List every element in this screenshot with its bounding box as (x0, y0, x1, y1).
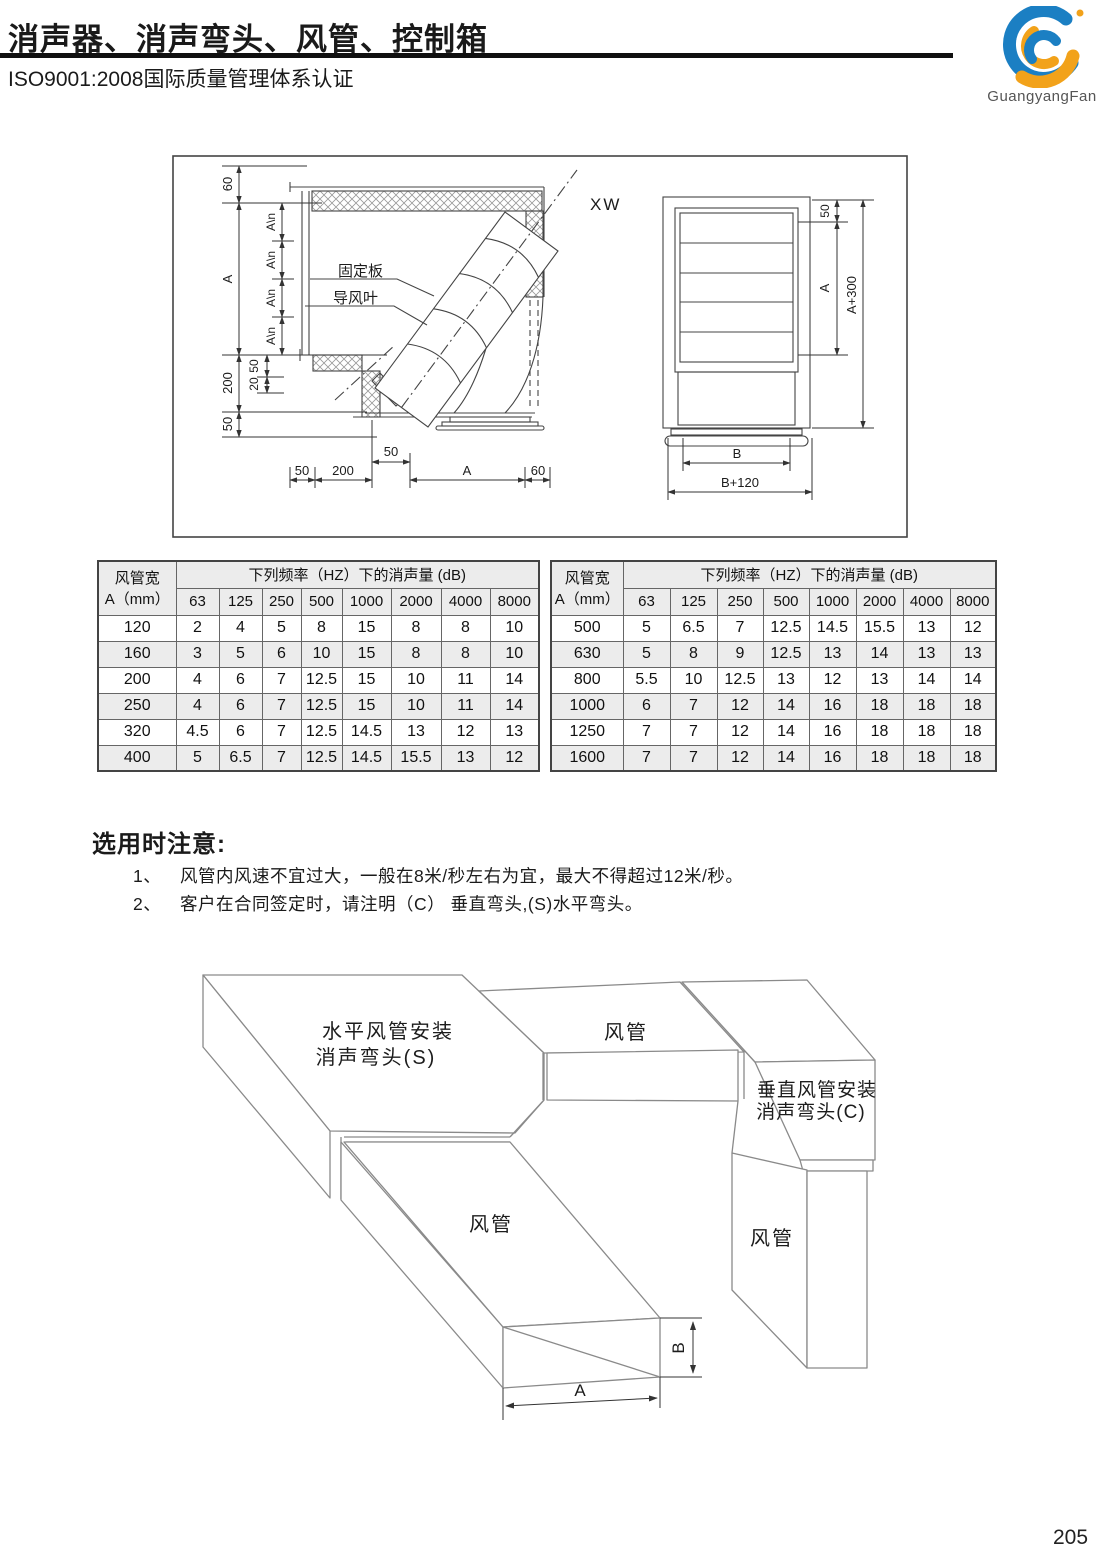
frequency-header-cell: 8000 (950, 588, 996, 615)
selection-notes-heading: 选用时注意: (92, 824, 226, 859)
table-cell: 18 (903, 719, 950, 745)
dim-front-B120-label: B+120 (721, 475, 759, 490)
table-cell: 16 (809, 693, 856, 719)
table-cell: 10 (670, 667, 717, 693)
table-cell: 12 (809, 667, 856, 693)
table-cell: 7 (670, 693, 717, 719)
dim-50-left-label: 50 (220, 417, 235, 431)
table-cell: 14 (490, 667, 539, 693)
table-cell: 4.5 (176, 719, 219, 745)
duct-label-right: 风管 (750, 1227, 794, 1250)
table-cell: 6 (219, 719, 262, 745)
table-cell: 13 (391, 719, 441, 745)
frequency-header-cell: 500 (763, 588, 809, 615)
attenuation-table-right: 风管宽A（mm） 下列频率（HZ）下的消声量 (dB) 631252505001… (550, 560, 997, 772)
iso-dim-A-label: A (574, 1381, 586, 1400)
silencer-elbow-technical-drawing: 固定板 导风叶 XW 60 A A\n A\n A\n A\n 50 20 20… (172, 155, 908, 538)
table-row: 125077121416181818 (551, 719, 996, 745)
table-row: 63058912.513141313 (551, 641, 996, 667)
duct-width-header: 风管宽A（mm） (98, 561, 176, 615)
table-cell: 7 (262, 693, 301, 719)
table-cell: 10 (490, 615, 539, 641)
table-cell: 7 (623, 719, 670, 745)
middle-duct-front-face (547, 1050, 738, 1101)
table-row: 16035610158810 (98, 641, 539, 667)
dim-front-A300-label: A+300 (844, 276, 859, 314)
installation-isometric-diagram: B A 水平风管安装 消声弯头(S) 风管 垂直风管安装 消声弯头(C) 风管 … (160, 950, 960, 1470)
table-cell: 11 (441, 693, 490, 719)
dim-An-label: A\n (264, 251, 278, 269)
table-cell: 4 (176, 667, 219, 693)
iso-certification-text: ISO9001:2008国际质量管理体系认证 (8, 63, 353, 93)
company-logo: GuangyangFan (972, 6, 1112, 108)
table-cell: 8 (391, 615, 441, 641)
table-cell: 18 (950, 693, 996, 719)
guide-vane-label: 导风叶 (333, 290, 378, 307)
table-cell: 6 (219, 693, 262, 719)
table-row: 40056.5712.514.515.51312 (98, 745, 539, 771)
note-1-number: 1、 (133, 863, 177, 888)
table-cell: 8 (670, 641, 717, 667)
table-cell: 5 (219, 641, 262, 667)
table-cell: 160 (98, 641, 176, 667)
table-row: 160077121416181818 (551, 745, 996, 771)
frequency-header-cell: 63 (176, 588, 219, 615)
table-cell: 4 (176, 693, 219, 719)
table-cell: 11 (441, 667, 490, 693)
iso-dim-B-label: B (669, 1342, 688, 1353)
table-cell: 6 (623, 693, 670, 719)
fixed-plate-label: 固定板 (338, 262, 383, 280)
dim-200-label: 200 (220, 372, 235, 394)
table-cell: 14.5 (342, 745, 391, 771)
table-cell: 18 (856, 719, 903, 745)
dim-bottom-A-label: A (463, 463, 472, 478)
table-row: 1202458158810 (98, 615, 539, 641)
table-cell: 14 (903, 667, 950, 693)
dim-50-inner-label: 50 (247, 359, 261, 373)
xw-model-label: XW (590, 195, 621, 214)
table-cell: 13 (856, 667, 903, 693)
table-cell: 12.5 (301, 667, 342, 693)
frequency-header-cell: 250 (262, 588, 301, 615)
table-cell: 8 (301, 615, 342, 641)
duct-width-header: 风管宽A（mm） (551, 561, 623, 615)
table-cell: 630 (551, 641, 623, 667)
table-cell: 5 (176, 745, 219, 771)
table-cell: 10 (301, 641, 342, 667)
table-cell: 14 (763, 719, 809, 745)
table-cell: 6.5 (670, 615, 717, 641)
dim-bottom-60-label: 60 (531, 463, 545, 478)
table-cell: 6 (219, 667, 262, 693)
table-cell: 800 (551, 667, 623, 693)
c-elbow-flange (800, 1160, 873, 1171)
dim-An-label: A\n (264, 213, 278, 231)
table-cell: 18 (903, 693, 950, 719)
table-cell: 14 (763, 693, 809, 719)
table-cell: 13 (763, 667, 809, 693)
table-cell: 7 (623, 745, 670, 771)
table-cell: 15.5 (391, 745, 441, 771)
frequency-header-cell: 2000 (856, 588, 903, 615)
frequency-header-cell: 125 (219, 588, 262, 615)
table-cell: 200 (98, 667, 176, 693)
table-cell: 3 (176, 641, 219, 667)
dim-An-label: A\n (264, 289, 278, 307)
table-cell: 12 (490, 745, 539, 771)
table-cell: 12.5 (301, 719, 342, 745)
table-cell: 8 (391, 641, 441, 667)
table-cell: 15 (342, 693, 391, 719)
table-cell: 500 (551, 615, 623, 641)
note-2-text: 客户在合同签定时，请注明（C） 垂直弯头,(S)水平弯头。 (180, 891, 940, 916)
table-cell: 320 (98, 719, 176, 745)
table-row: 25046712.515101114 (98, 693, 539, 719)
duct-label-top: 风管 (604, 1021, 648, 1044)
table-cell: 12.5 (301, 693, 342, 719)
table-cell: 12 (717, 693, 763, 719)
table-cell: 12 (717, 745, 763, 771)
table-cell: 14 (763, 745, 809, 771)
frequency-header-cell: 250 (717, 588, 763, 615)
table-cell: 5.5 (623, 667, 670, 693)
front-view-dimension-lines (668, 200, 874, 500)
table-row: 3204.56712.514.5131213 (98, 719, 539, 745)
table-cell: 15.5 (856, 615, 903, 641)
dim-A-label: A (220, 274, 235, 283)
table-cell: 250 (98, 693, 176, 719)
logo-text: GuangyangFan (972, 88, 1112, 105)
table-cell: 18 (950, 719, 996, 745)
table-cell: 8 (441, 641, 490, 667)
table-cell: 2 (176, 615, 219, 641)
dim-An-label: A\n (264, 327, 278, 345)
table-cell: 18 (856, 745, 903, 771)
frequency-header-cell: 4000 (441, 588, 490, 615)
attenuation-table-left: 风管宽A（mm） 下列频率（HZ）下的消声量 (dB) 631252505001… (97, 560, 540, 772)
page-number: 205 (1053, 1526, 1088, 1550)
dim-bottom-50-label: 50 (295, 463, 309, 478)
table-cell: 13 (441, 745, 490, 771)
dim-20-label: 20 (247, 377, 261, 391)
duct-label-bottom: 风管 (469, 1213, 513, 1236)
table-cell: 15 (342, 615, 391, 641)
table-cell: 5 (262, 615, 301, 641)
frequency-header-cell: 125 (670, 588, 717, 615)
dim-front-B-label: B (733, 446, 742, 461)
frequency-header-cell: 1000 (809, 588, 856, 615)
table-cell: 12.5 (763, 641, 809, 667)
table-cell: 9 (717, 641, 763, 667)
table-cell: 7 (670, 719, 717, 745)
table-cell: 13 (809, 641, 856, 667)
table-cell: 12.5 (717, 667, 763, 693)
table-cell: 5 (623, 641, 670, 667)
table-cell: 7 (262, 745, 301, 771)
horizontal-elbow-label-line1: 水平风管安装 (322, 1020, 454, 1043)
table-cell: 1250 (551, 719, 623, 745)
table-row: 100067121416181818 (551, 693, 996, 719)
table-cell: 5 (623, 615, 670, 641)
dim-bottom-200-label: 200 (332, 463, 354, 478)
table-cell: 8 (441, 615, 490, 641)
table-cell: 13 (903, 641, 950, 667)
vertical-duct-front-face (807, 1171, 867, 1368)
frequency-header-cell: 4000 (903, 588, 950, 615)
frequency-header-cell: 1000 (342, 588, 391, 615)
frequency-header-cell: 63 (623, 588, 670, 615)
table-cell: 7 (717, 615, 763, 641)
table-cell: 14.5 (342, 719, 391, 745)
table-cell: 1600 (551, 745, 623, 771)
table-cell: 13 (490, 719, 539, 745)
frequency-span-header: 下列频率（HZ）下的消声量 (dB) (623, 561, 996, 588)
table-cell: 14.5 (809, 615, 856, 641)
table-cell: 12 (950, 615, 996, 641)
logo-swirl-icon (972, 6, 1112, 88)
table-cell: 16 (809, 719, 856, 745)
note-1-text: 风管内风速不宜过大，一般在8米/秒左右为宜，最大不得超过12米/秒。 (180, 863, 940, 888)
table-row: 8005.51012.51312131414 (551, 667, 996, 693)
table-cell: 4 (219, 615, 262, 641)
front-view (663, 197, 810, 446)
note-2-number: 2、 (133, 891, 177, 916)
table-cell: 10 (391, 667, 441, 693)
table-cell: 6.5 (219, 745, 262, 771)
vertical-elbow-label-line2: 消声弯头(C) (756, 1101, 865, 1123)
dim-60-label: 60 (220, 177, 235, 191)
table-cell: 12.5 (301, 745, 342, 771)
dim-front-50-label: 50 (818, 204, 832, 218)
table-cell: 7 (670, 745, 717, 771)
table-cell: 13 (950, 641, 996, 667)
table-cell: 18 (856, 693, 903, 719)
table-cell: 15 (342, 641, 391, 667)
table-row: 20046712.515101114 (98, 667, 539, 693)
iso-line-work (203, 975, 875, 1388)
table-cell: 10 (490, 641, 539, 667)
table-cell: 18 (950, 745, 996, 771)
frequency-header-cell: 500 (301, 588, 342, 615)
table-cell: 10 (391, 693, 441, 719)
vertical-elbow-label-line1: 垂直风管安装 (757, 1079, 877, 1101)
table-cell: 12.5 (763, 615, 809, 641)
table-cell: 14 (856, 641, 903, 667)
table-cell: 12 (441, 719, 490, 745)
dim-front-A-label: A (817, 283, 832, 292)
table-cell: 120 (98, 615, 176, 641)
table-cell: 6 (262, 641, 301, 667)
bottom-duct-end-face (503, 1318, 660, 1388)
table-cell: 400 (98, 745, 176, 771)
table-cell: 13 (903, 615, 950, 641)
table-cell: 1000 (551, 693, 623, 719)
table-cell: 18 (903, 745, 950, 771)
table-cell: 14 (490, 693, 539, 719)
table-cell: 15 (342, 667, 391, 693)
table-cell: 7 (262, 719, 301, 745)
table-cell: 7 (262, 667, 301, 693)
table-cell: 16 (809, 745, 856, 771)
vertical-duct-side-face (732, 1153, 807, 1368)
dim-bottom-50s-label: 50 (384, 444, 398, 459)
frequency-header-cell: 2000 (391, 588, 441, 615)
table-cell: 12 (717, 719, 763, 745)
horizontal-elbow-label-line2: 消声弯头(S) (316, 1046, 437, 1069)
frequency-header-cell: 8000 (490, 588, 539, 615)
header-divider (0, 53, 953, 58)
frequency-span-header: 下列频率（HZ）下的消声量 (dB) (176, 561, 539, 588)
table-row: 50056.5712.514.515.51312 (551, 615, 996, 641)
table-cell: 14 (950, 667, 996, 693)
